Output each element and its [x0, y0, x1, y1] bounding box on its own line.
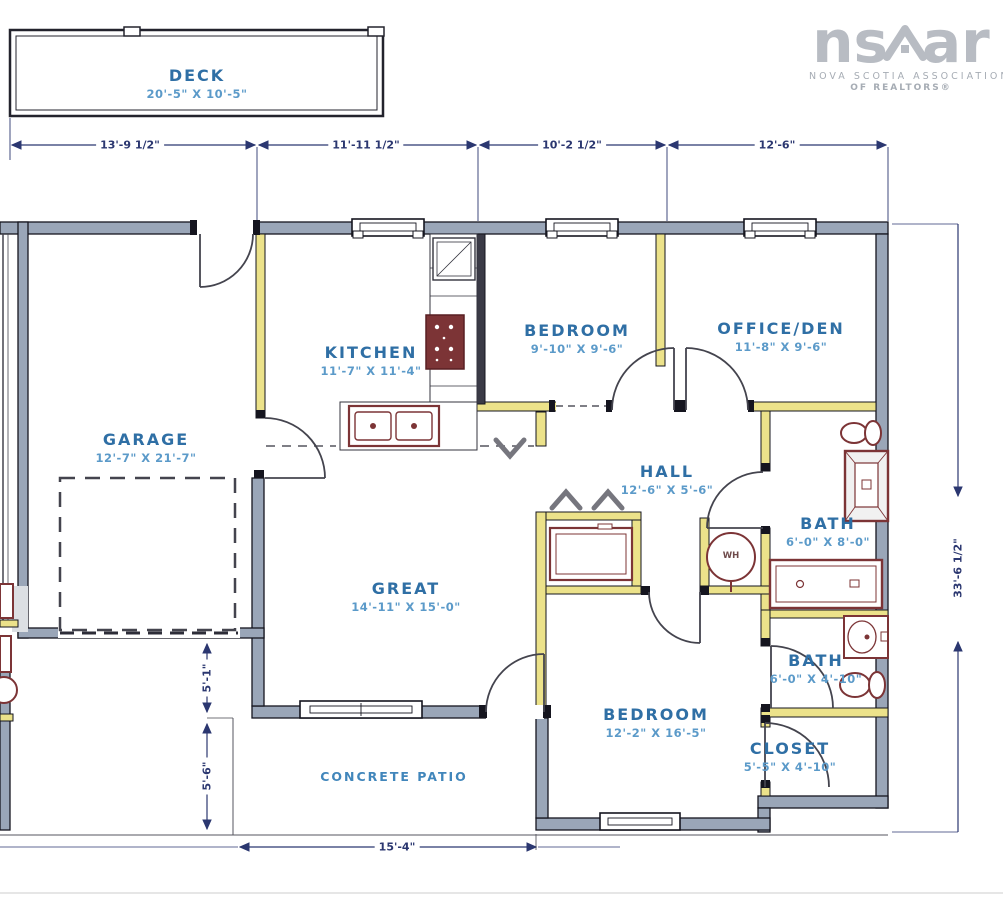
dim-label-top-3: 10'-2 1/2"	[538, 139, 606, 152]
room-label-closet: CLOSET 5'-5" X 4'-10"	[744, 739, 836, 775]
room-label-deck: DECK 20'-5" X 10'-5"	[147, 66, 248, 102]
logo-text-ar: ar	[922, 18, 990, 67]
window-bedroom2	[600, 813, 680, 830]
dim-label-left-lower: 5'-6"	[201, 758, 214, 795]
door-garage-to-house	[265, 418, 325, 478]
window-great-room	[300, 701, 422, 718]
room-label-hall: HALL 12'-6" X 5'-6"	[621, 462, 713, 498]
floor-plan-page: DECK 20'-5" X 10'-5" GARAGE 12'-7" X 21'…	[0, 0, 1003, 900]
room-label-kitchen: KITCHEN 11'-7" X 11'-4"	[321, 343, 422, 379]
bottom-dimension-line	[0, 834, 620, 850]
dim-label-left-upper: 5'-1"	[201, 660, 214, 697]
room-label-great: GREAT 14'-11" X 15'-0"	[351, 579, 460, 615]
dim-label-top-4: 12'-6"	[755, 139, 800, 152]
room-label-patio: CONCRETE PATIO	[320, 769, 468, 785]
nsar-logo-word: ns ar	[809, 18, 993, 67]
garage-features	[58, 478, 240, 638]
room-label-garage: GARAGE 12'-7" X 21'-7"	[96, 430, 197, 466]
range-icon	[426, 315, 464, 369]
window-kitchen	[352, 219, 424, 238]
kitchen-bedroom-wall	[477, 234, 485, 404]
water-heater-icon	[707, 533, 755, 592]
logo-subtitle-line1: NOVA SCOTIA ASSOCIATION	[809, 71, 993, 82]
toilet-icon	[841, 421, 881, 445]
room-label-bedroom1: BEDROOM 9'-10" X 9'-6"	[524, 321, 630, 357]
dim-label-right: 33'-6 1/2"	[952, 534, 965, 602]
window-office	[744, 219, 816, 238]
doors	[200, 234, 833, 787]
logo-subtitle-line2: OF REALTORS®	[809, 83, 993, 93]
door-bath1	[707, 472, 763, 528]
right-dimension-line	[892, 224, 958, 832]
door-patio	[486, 654, 544, 712]
door-deck-to-garage	[200, 234, 253, 287]
chevron-marks	[496, 440, 622, 508]
water-heater-label: WH	[723, 551, 740, 561]
parking-space-dashed	[60, 478, 235, 630]
windows	[300, 219, 816, 830]
window-bedroom1	[546, 219, 618, 238]
kitchen-fixtures	[340, 234, 477, 450]
room-label-bath2: BATH 6'-0" X 4'-10"	[770, 651, 862, 687]
laundry-tub-icon	[550, 524, 632, 580]
room-label-bath1: BATH 6'-0" X 8'-0"	[786, 514, 870, 550]
shower-icon	[845, 451, 888, 521]
room-label-bedroom2: BEDROOM 12'-2" X 16'-5"	[603, 705, 709, 741]
kitchen-sink-icon	[349, 406, 439, 446]
nsar-logo: ns ar NOVA SCOTIA ASSOCIATION OF REALTOR…	[809, 18, 993, 93]
dim-label-top-1: 13'-9 1/2"	[96, 139, 164, 152]
logo-house-roof-icon	[883, 18, 927, 67]
dim-label-bottom: 15'-4"	[375, 841, 420, 854]
fridge-icon	[433, 238, 475, 280]
dim-label-top-2: 11'-11 1/2"	[328, 139, 403, 152]
room-label-office: OFFICE/DEN 11'-8" X 9'-6"	[717, 319, 845, 355]
top-dimension-lines	[10, 118, 888, 221]
door-bedroom2	[649, 592, 700, 643]
bathtub-icon	[770, 560, 882, 608]
logo-text-ns: ns	[812, 18, 888, 67]
